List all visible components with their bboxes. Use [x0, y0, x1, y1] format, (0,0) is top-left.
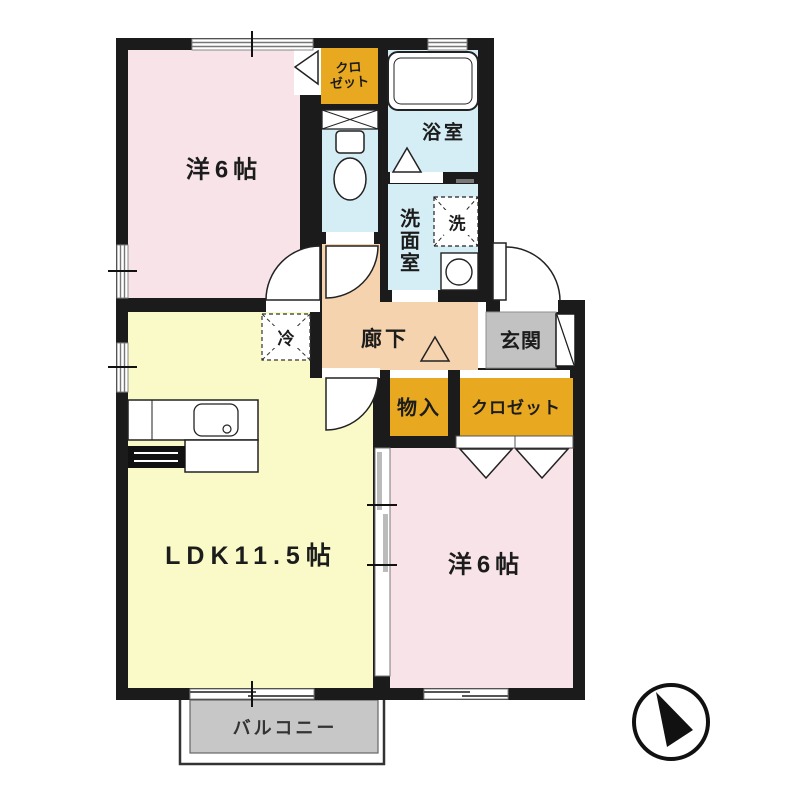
balcony-label: バルコニー: [233, 714, 338, 740]
closet-bottom-door-gap: [460, 370, 570, 378]
ldk-floor-west: [128, 312, 310, 688]
bathroom-window: [428, 39, 467, 50]
toilet-door-gap: [326, 232, 374, 244]
kitchen-faucet: [223, 425, 231, 433]
bedroom-bottom-label: 洋6帖: [448, 545, 524, 580]
refrigerator-label: 冷: [278, 325, 295, 350]
storage-label: 物入: [397, 392, 441, 421]
toilet-shelf: [322, 110, 378, 129]
bathtub: [388, 52, 478, 110]
washroom-door-gap: [392, 290, 438, 302]
kitchen-sink: [194, 404, 238, 436]
entrance-door: [493, 243, 560, 301]
ldk-label: LDK11.5帖: [165, 536, 337, 572]
bedroom-bottom-window: [424, 689, 508, 699]
bathroom-label: 浴室: [422, 118, 466, 145]
hallway-label: 廊下: [361, 323, 409, 353]
kitchen-counter: [128, 400, 258, 472]
entrance-step: [478, 302, 486, 368]
toilet-fixture: [334, 131, 366, 200]
entrance-door-gap: [500, 300, 558, 312]
storage-door-gap: [390, 370, 448, 378]
closet-bottom-label: クロゼット: [471, 394, 561, 419]
entrance-label: 玄関: [500, 325, 542, 354]
bedroom1-door-gap: [266, 300, 320, 312]
north-arrow-icon: [634, 685, 708, 759]
closet-top-label: クロ ゼット: [328, 59, 369, 92]
stove-icon: [128, 446, 185, 468]
washroom-label: 洗面室: [394, 208, 423, 274]
floor-plan-page: 洋6帖 クロ ゼット 浴室 洗面室 洗 廊下 玄関 冷 物入 クロゼット LDK…: [0, 0, 800, 800]
ldk-door-gap: [322, 368, 380, 378]
washer-label: 洗: [449, 210, 466, 235]
shoe-cabinet: [556, 314, 575, 366]
bathroom-threshold: [390, 172, 443, 183]
bedroom-top-label: 洋6帖: [186, 150, 262, 185]
washbasin: [441, 253, 478, 290]
closet-top-label-line2: ゼット: [330, 74, 370, 92]
